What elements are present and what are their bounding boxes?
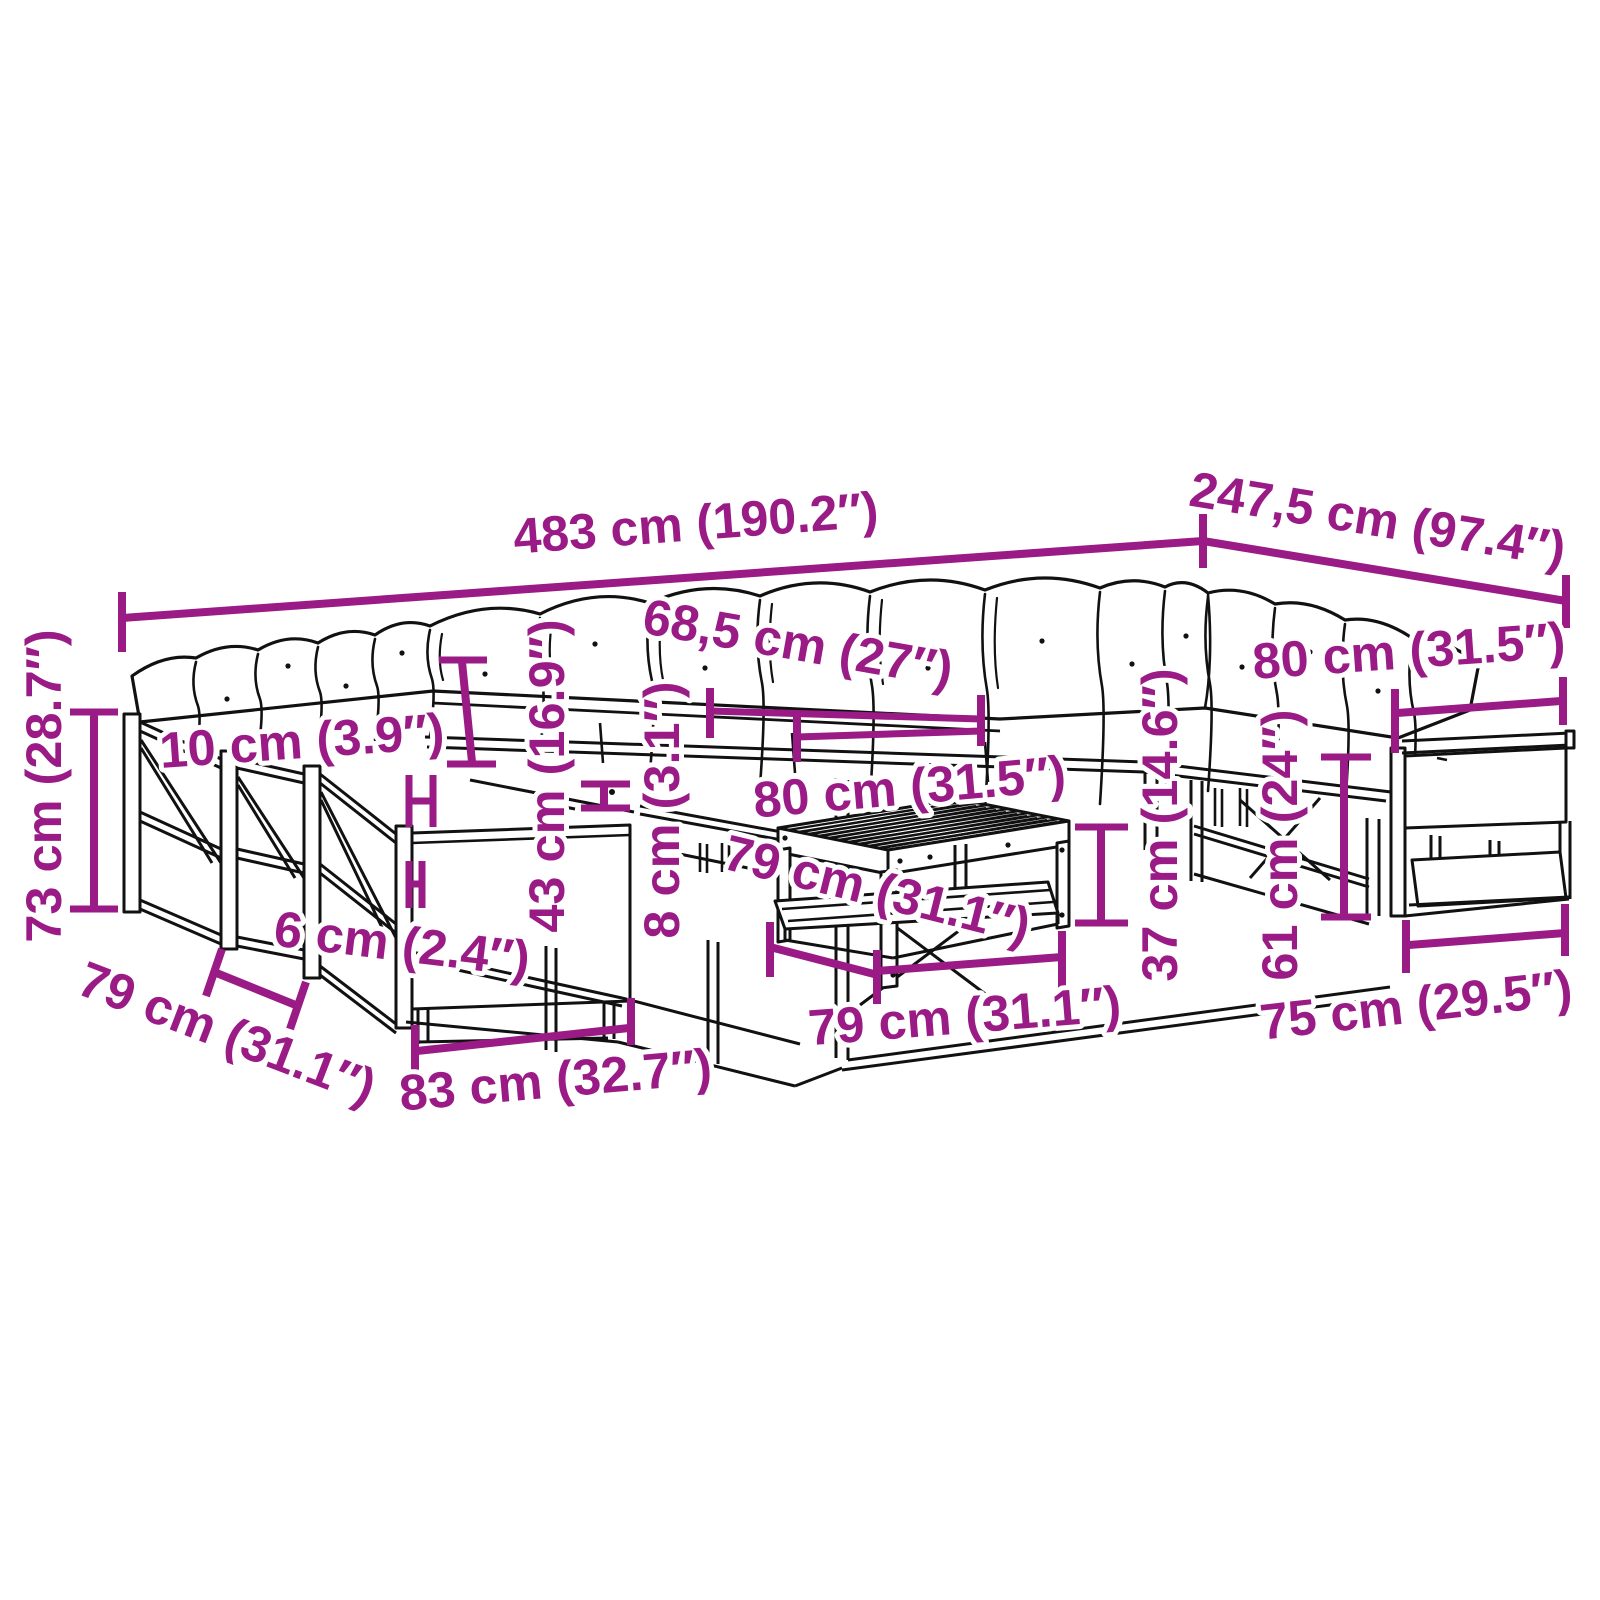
- svg-text:43 cm (16.9″): 43 cm (16.9″): [518, 619, 575, 932]
- svg-text:8 cm (3.1″): 8 cm (3.1″): [633, 681, 690, 938]
- svg-text:37 cm (14.6″): 37 cm (14.6″): [1131, 668, 1188, 981]
- svg-text:73 cm (28.7″): 73 cm (28.7″): [15, 629, 72, 942]
- svg-text:61 cm (24″): 61 cm (24″): [1251, 709, 1308, 980]
